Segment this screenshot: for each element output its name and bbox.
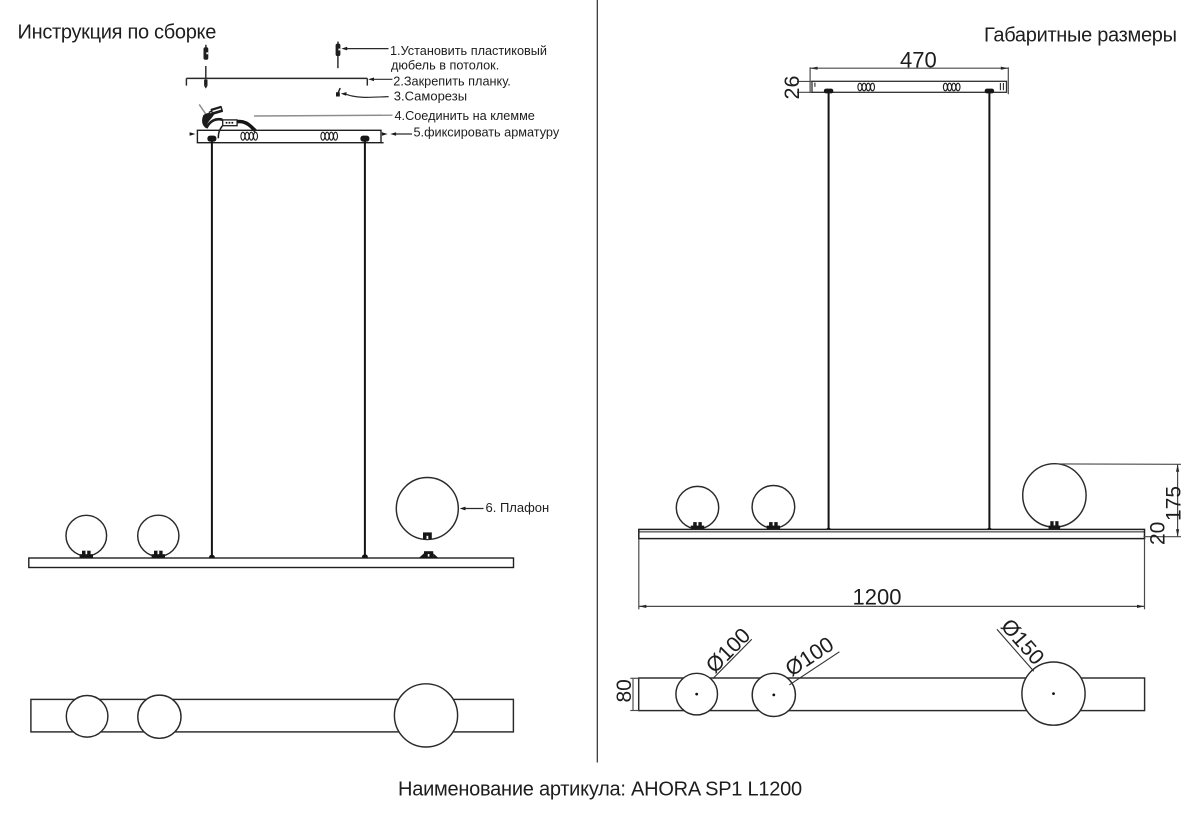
svg-text:1.Установить пластиковый: 1.Установить пластиковый — [390, 44, 547, 58]
svg-text:80: 80 — [613, 679, 636, 702]
svg-text:3.Саморезы: 3.Саморезы — [394, 88, 467, 103]
svg-text:дюбель в потолок.: дюбель в потолок. — [391, 59, 499, 73]
svg-text:20: 20 — [1147, 522, 1170, 545]
svg-text:175: 175 — [1163, 486, 1186, 521]
svg-text:26: 26 — [780, 76, 804, 100]
svg-text:2.Закрепить планку.: 2.Закрепить планку. — [393, 74, 511, 88]
svg-text:6. Плафон: 6. Плафон — [486, 500, 550, 515]
svg-text:470: 470 — [900, 48, 937, 73]
svg-text:5.фиксировать арматуру: 5.фиксировать арматуру — [414, 125, 560, 139]
svg-text:1200: 1200 — [853, 585, 902, 610]
svg-text:Габаритные размеры: Габаритные размеры — [984, 25, 1177, 47]
svg-text:Инструкция по сборке: Инструкция по сборке — [18, 22, 217, 44]
svg-text:Наименование артикула: AHORA S: Наименование артикула: AHORA SP1 L1200 — [398, 779, 802, 801]
svg-text:4.Соединить на клемме: 4.Соединить на клемме — [395, 109, 535, 123]
